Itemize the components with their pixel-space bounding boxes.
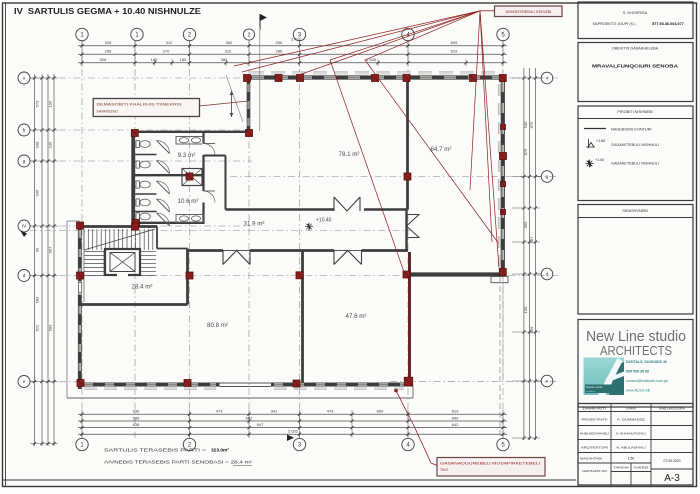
svg-text:236: 236	[48, 141, 53, 148]
svg-text:NewLine studio: NewLine studio	[586, 386, 603, 389]
svg-text:473: 473	[327, 409, 334, 414]
svg-text:contact@linlstudio.com.ge: contact@linlstudio.com.ge	[626, 379, 668, 383]
svg-text:595 598 35 98: 595 598 35 98	[626, 370, 649, 374]
svg-text:IV SARTULIS GEGMA + 10.40 NIS: IV SARTULIS GEGMA + 10.40 NISHNULZE	[14, 7, 201, 16]
svg-text:07.05.2020: 07.05.2020	[664, 459, 681, 463]
svg-text:31.9 m²: 31.9 m²	[244, 221, 265, 228]
svg-text:338: 338	[35, 141, 40, 148]
svg-text:A. DUMBADZE: A. DUMBADZE	[617, 417, 645, 421]
svg-text:362: 362	[226, 40, 233, 45]
svg-text:323.0m²: 323.0m²	[211, 448, 229, 454]
svg-text:341: 341	[271, 409, 278, 414]
svg-text:d: d	[546, 272, 549, 277]
svg-text:536: 536	[133, 409, 140, 414]
svg-text:GASANADGUREBELI MOSAPIRKETEBE: GASANADGUREBELI MOSAPIRKETEBELI	[440, 462, 540, 466]
svg-text:80.8 m²: 80.8 m²	[207, 322, 228, 329]
svg-text:SARTULIS TERASEBIS PARTI =: SARTULIS TERASEBIS PARTI =	[104, 448, 207, 453]
svg-text:e: e	[546, 379, 549, 384]
svg-text:100: 100	[523, 306, 528, 313]
svg-text:SAVARDZNO: SAVARDZNO	[97, 110, 119, 114]
svg-text:90: 90	[35, 247, 40, 252]
svg-text:MASSHTABI: MASSHTABI	[580, 456, 602, 460]
svg-text:1:50: 1:50	[628, 456, 635, 460]
svg-text:DAMKVETI: DAMKVETI	[583, 406, 607, 410]
svg-text:577.93.36.003.077: 577.93.36.003.077	[652, 22, 684, 26]
svg-text:+1.60: +1.60	[596, 139, 605, 143]
svg-text:187: 187	[529, 236, 534, 243]
svg-text:ARQITEKTORI: ARQITEKTORI	[581, 445, 608, 449]
svg-text:536: 536	[133, 415, 140, 420]
svg-text:78.1 m²: 78.1 m²	[339, 151, 360, 158]
svg-text:180: 180	[180, 57, 187, 62]
svg-text:622: 622	[35, 324, 40, 331]
svg-text:640: 640	[452, 415, 459, 420]
svg-text:DEMONTIREBULI KEDLEBI: DEMONTIREBULI KEDLEBI	[506, 10, 552, 14]
svg-text:KHELMOCERA: KHELMOCERA	[659, 406, 686, 410]
svg-text:AIVNEBIS TERASEBIS PARTI SE: AIVNEBIS TERASEBIS PARTI SENOBASI = 28.4…	[104, 460, 253, 465]
svg-text:SAPROEKTO JGUPI (S.): SAPROEKTO JGUPI (S.)	[593, 22, 637, 26]
svg-text:583: 583	[35, 296, 40, 303]
svg-text:473: 473	[216, 409, 223, 414]
svg-text:OBIEKTIS DASAKHELEBA: OBIEKTIS DASAKHELEBA	[612, 47, 659, 51]
svg-text:286: 286	[276, 49, 283, 54]
svg-text:528: 528	[100, 57, 107, 62]
svg-text:312: 312	[166, 40, 173, 45]
svg-text:619: 619	[452, 409, 459, 414]
svg-text:600: 600	[377, 409, 384, 414]
svg-text:architects: architects	[586, 390, 596, 393]
svg-text:270: 270	[163, 49, 170, 54]
svg-text:NAGEBOBIS KONTURI: NAGEBOBIS KONTURI	[611, 128, 652, 132]
svg-text:300: 300	[523, 221, 528, 228]
svg-text:www.NLSA.GE: www.NLSA.GE	[626, 389, 651, 393]
svg-text:DIGITALS, SUGDIDIS 46: DIGITALS, SUGDIDIS 46	[626, 360, 667, 364]
svg-text:957: 957	[48, 246, 53, 253]
svg-text:PIROBITI NISHNEBI: PIROBITI NISHNEBI	[617, 110, 652, 114]
svg-text:e: e	[23, 379, 26, 384]
svg-text:2.632: 2.632	[288, 429, 299, 434]
svg-text:47.6 m²: 47.6 m²	[346, 313, 367, 320]
svg-text:296: 296	[35, 189, 40, 196]
svg-text:ARCHITECTS: ARCHITECTS	[600, 343, 672, 358]
svg-text:A. KHAKHUTASVILI: A. KHAKHUTASVILI	[616, 431, 646, 435]
svg-text:64.7 m²: 64.7 m²	[431, 146, 452, 153]
svg-text:b: b	[23, 128, 26, 133]
svg-text:619: 619	[451, 49, 458, 54]
svg-text:296: 296	[105, 49, 112, 54]
svg-text:DEMASOBITI KHALKHIS TSNEKRIS: DEMASOBITI KHALKHIS TSNEKRIS	[97, 103, 183, 107]
svg-text:196: 196	[48, 100, 53, 107]
svg-text:SENISHVNEBI: SENISHVNEBI	[622, 209, 648, 213]
svg-text:MRAVALFUNQCIURI SENOBA: MRAVALFUNQCIURI SENOBA	[592, 64, 678, 69]
svg-text:NAKHAZIS NO: NAKHAZIS NO	[582, 469, 608, 473]
svg-text:530: 530	[523, 121, 528, 128]
svg-text:947: 947	[257, 422, 264, 427]
svg-text:GADAKETEBULI NISHNULI: GADAKETEBULI NISHNULI	[611, 143, 659, 147]
svg-text:312: 312	[225, 49, 232, 54]
svg-text:+10.40: +10.40	[316, 218, 332, 224]
svg-text:325: 325	[105, 40, 112, 45]
svg-text:g: g	[546, 174, 549, 179]
svg-text:PROEKTANTI: PROEKTANTI	[582, 417, 608, 421]
svg-text:9.3 m²: 9.3 m²	[178, 152, 196, 159]
svg-text:573: 573	[35, 100, 40, 107]
svg-text:TIKO: TIKO	[440, 468, 448, 472]
svg-text:609: 609	[451, 40, 458, 45]
svg-text:638: 638	[133, 422, 140, 427]
svg-text:1.435: 1.435	[366, 57, 377, 62]
svg-text:875: 875	[529, 121, 534, 128]
svg-text:875: 875	[523, 148, 528, 155]
svg-text:S. KHOKRISA: S. KHOKRISA	[623, 11, 648, 15]
svg-text:140: 140	[151, 57, 158, 62]
svg-text:A-3: A-3	[664, 473, 680, 484]
svg-text:2: 2	[248, 32, 251, 38]
svg-text:642: 642	[452, 422, 459, 427]
svg-text:d: d	[23, 273, 26, 278]
svg-text:GVARI: GVARI	[626, 406, 636, 410]
svg-text:296: 296	[276, 40, 283, 45]
svg-text:GVERDI: GVERDI	[634, 466, 649, 470]
svg-text:10.6 m²: 10.6 m²	[178, 198, 199, 205]
svg-text:N. ABULASHVILI: N. ABULASHVILI	[617, 445, 646, 449]
svg-text:629: 629	[529, 326, 534, 333]
svg-text:+1.00: +1.00	[595, 158, 604, 162]
svg-text:GADAKETEBULI NISHNULI: GADAKETEBULI NISHNULI	[611, 162, 659, 166]
svg-text:28.4 m²: 28.4 m²	[132, 284, 153, 291]
svg-text:TARIGHI: TARIGHI	[614, 466, 629, 470]
svg-text:KHELMZGVANELI: KHELMZGVANELI	[580, 431, 609, 435]
svg-text:583: 583	[48, 324, 53, 331]
svg-text:381: 381	[221, 57, 228, 62]
svg-text:607: 607	[246, 415, 253, 420]
svg-text:g: g	[23, 159, 26, 164]
